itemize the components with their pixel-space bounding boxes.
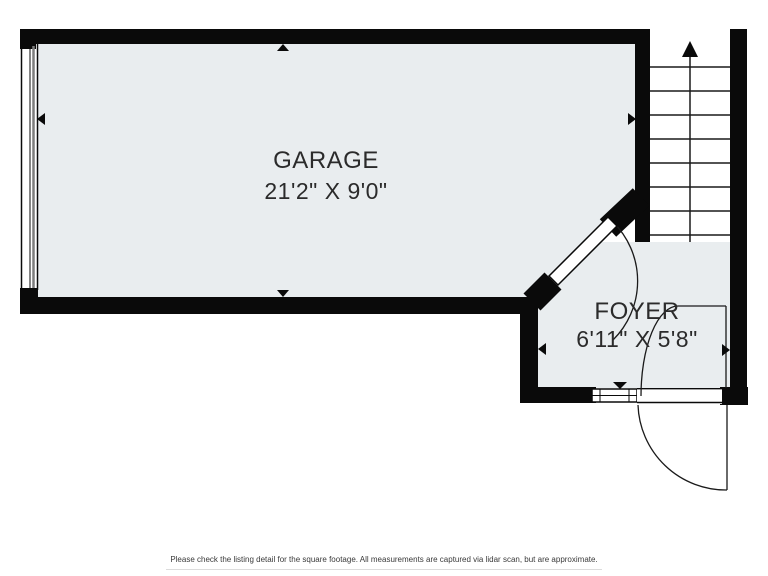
foyer-window [592,389,637,402]
wall-diagonal-lower-post [532,281,553,302]
floorplan-drawing: GARAGE 21'2" X 9'0" FOYER 6'11" X 5'8" [0,0,768,576]
wall-garage-bottom [20,297,538,314]
garage-door-panel [22,44,38,290]
wall-right [730,29,747,405]
staircase [650,41,730,242]
entry-door-opening [637,388,722,404]
garage-label: GARAGE [273,147,379,174]
footer: Please check the listing detail for the … [0,549,768,570]
disclaimer-text: Please check the listing detail for the … [166,555,601,570]
floorplan-page: GARAGE 21'2" X 9'0" FOYER 6'11" X 5'8" P… [0,0,768,576]
wall-top [20,29,650,44]
stairs-up-arrow-icon [682,41,698,57]
garage-dimensions: 21'2" X 9'0" [264,178,387,204]
foyer-label: FOYER [594,298,679,325]
entry-outer-swing-arc [638,405,727,490]
wall-foyer-bottom-left [520,387,596,403]
foyer-dimensions: 6'11" X 5'8" [576,326,697,352]
